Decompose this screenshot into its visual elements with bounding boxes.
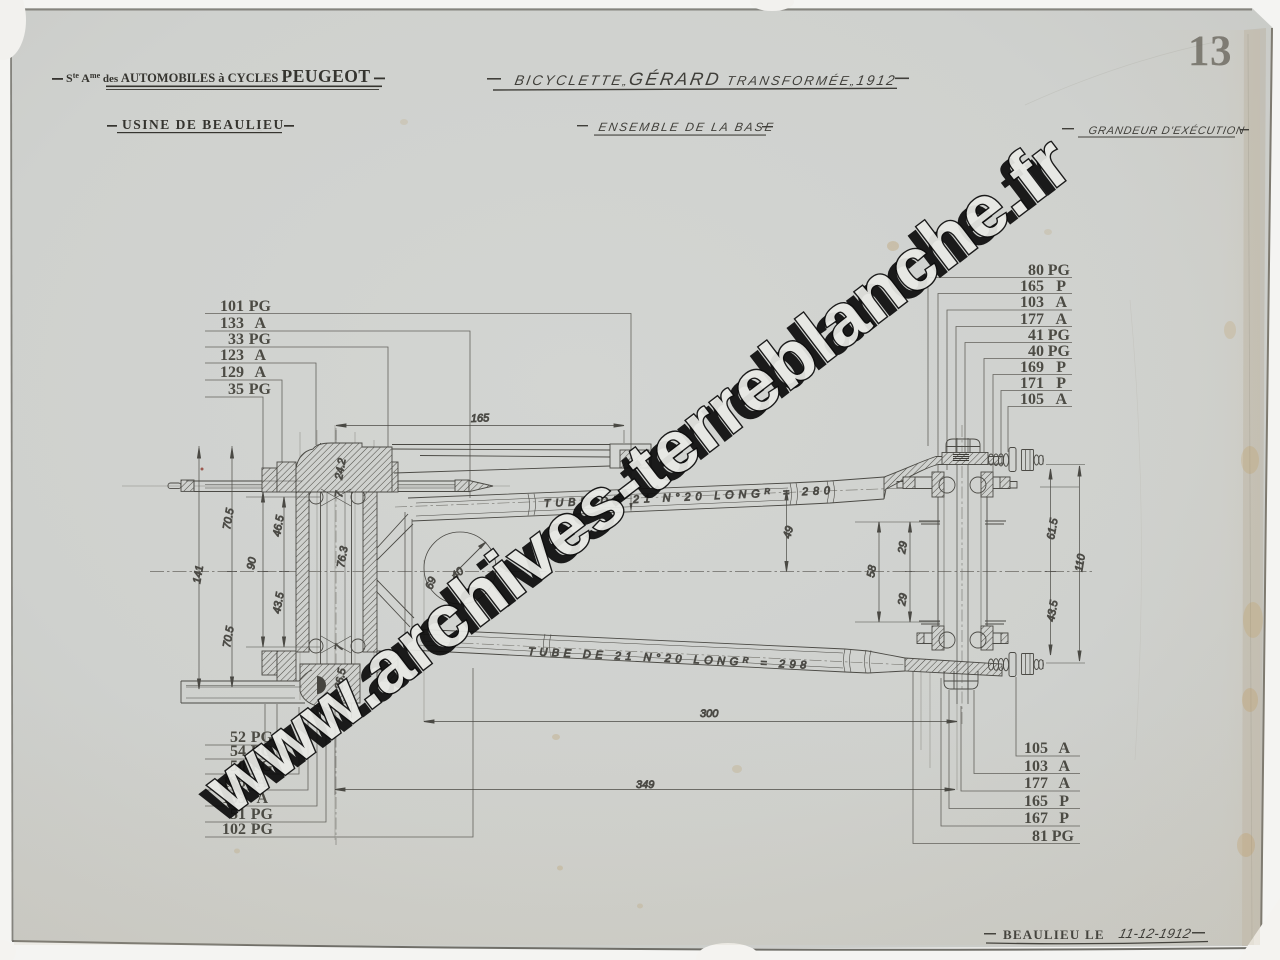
svg-text:PG: PG [249, 298, 272, 315]
svg-text:BEAULIEU LE: BEAULIEU LE [1003, 927, 1105, 942]
svg-text:A: A [1055, 391, 1067, 408]
svg-text:35: 35 [228, 381, 244, 398]
svg-text:33: 33 [228, 331, 244, 348]
svg-text:80: 80 [1028, 262, 1044, 279]
svg-text:103: 103 [1024, 758, 1048, 775]
svg-text:A: A [1058, 758, 1070, 775]
svg-text:169: 169 [1020, 359, 1044, 376]
svg-text:GRANDEUR D'EXÉCUTION: GRANDEUR D'EXÉCUTION [1087, 124, 1245, 137]
svg-text:165: 165 [471, 412, 491, 425]
svg-text:13: 13 [1188, 28, 1232, 75]
svg-text:BICYCLETTE„GÉRARD TRANSFORMÉE„: BICYCLETTE„GÉRARD TRANSFORMÉE„1912 [513, 69, 898, 89]
svg-text:P: P [1056, 375, 1066, 392]
svg-text:81: 81 [1032, 828, 1048, 845]
svg-text:105: 105 [1024, 740, 1048, 757]
svg-text:PG: PG [1048, 262, 1071, 279]
svg-text:PG: PG [249, 381, 272, 398]
svg-text:PG: PG [1048, 343, 1071, 360]
svg-text:29: 29 [896, 592, 910, 607]
svg-text:177: 177 [1024, 775, 1048, 792]
svg-text:29: 29 [896, 540, 910, 555]
svg-text:P: P [1056, 278, 1066, 295]
svg-text:101: 101 [220, 298, 244, 315]
svg-text:A: A [1055, 311, 1067, 328]
svg-text:105: 105 [1020, 391, 1044, 408]
svg-text:41: 41 [1028, 327, 1044, 344]
svg-text:PG: PG [249, 331, 272, 348]
svg-text:A: A [254, 347, 266, 364]
svg-text:349: 349 [636, 779, 654, 791]
svg-text:P: P [1056, 359, 1066, 376]
svg-text:ENSEMBLE DE LA BASE: ENSEMBLE DE LA BASE [597, 120, 776, 134]
svg-text:103: 103 [1020, 294, 1044, 311]
svg-text:11-12-1912: 11-12-1912 [1117, 926, 1192, 941]
svg-text:PG: PG [1048, 327, 1071, 344]
svg-text:A: A [1058, 775, 1070, 792]
svg-text:165: 165 [1020, 278, 1044, 295]
svg-text:165: 165 [1024, 793, 1048, 810]
svg-text:171: 171 [1020, 375, 1044, 392]
svg-text:A: A [254, 364, 266, 381]
svg-text:40: 40 [1028, 343, 1044, 360]
svg-text:167: 167 [1024, 810, 1048, 827]
svg-text:P: P [1059, 810, 1069, 827]
svg-text:133: 133 [220, 315, 244, 332]
svg-text:177: 177 [1020, 311, 1044, 328]
svg-text:P: P [1059, 793, 1069, 810]
svg-text:PG: PG [251, 821, 274, 838]
svg-text:129: 129 [220, 364, 244, 381]
svg-text:A: A [1055, 294, 1067, 311]
svg-text:300: 300 [700, 708, 719, 720]
svg-text:PG: PG [1052, 828, 1075, 845]
svg-text:A: A [254, 315, 266, 332]
svg-text:123: 123 [220, 347, 244, 364]
svg-text:USINE DE BEAULIEU: USINE DE BEAULIEU [122, 117, 285, 132]
svg-text:A: A [1058, 740, 1070, 757]
